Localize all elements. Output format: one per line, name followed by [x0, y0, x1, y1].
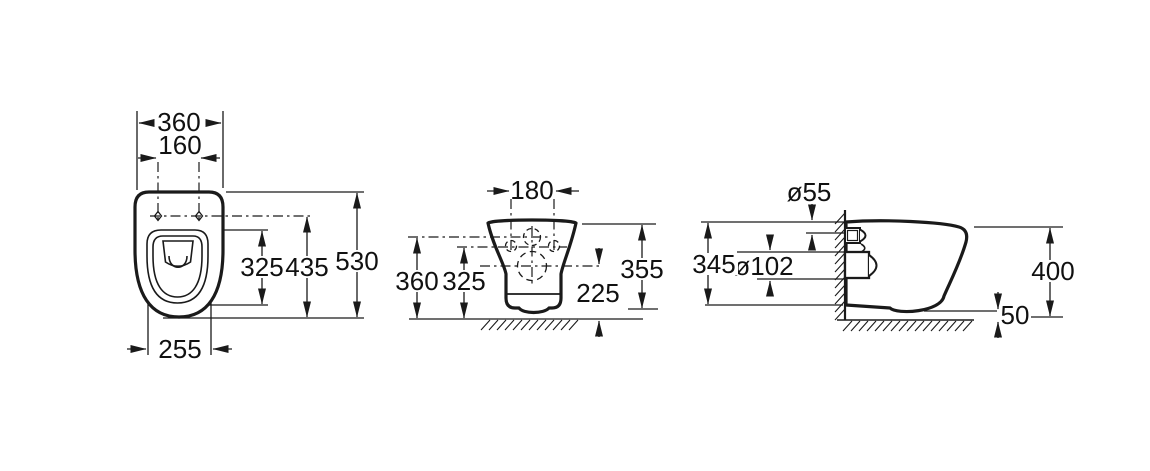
dim-rear-width: 255	[127, 334, 232, 364]
dim-label: 325	[240, 252, 283, 282]
dim-label: 530	[335, 246, 378, 276]
floor-hatch	[843, 321, 972, 331]
dim-label: ø102	[734, 251, 793, 281]
floor-hatch	[481, 320, 578, 330]
dim-fixing-centres-front: 180	[487, 175, 579, 205]
technical-drawing: 360 160 325 435 530 255	[0, 0, 1150, 471]
dim-label: 360	[395, 266, 438, 296]
outlet-stub	[845, 252, 869, 278]
dim-floor-clearance: 50	[998, 292, 1029, 338]
dim-label: 345	[692, 249, 735, 279]
dim-label: ø55	[787, 177, 832, 207]
dim-outlet-axis-height: 225	[576, 248, 619, 337]
dim-inlet-axis-height: 360	[394, 238, 440, 318]
dim-label: 50	[1001, 300, 1030, 330]
dim-fixing-axis-height: 325	[441, 248, 487, 318]
top-view: 360 160 325 435 530 255	[127, 107, 380, 364]
dim-axis-to-front: 435	[284, 217, 330, 317]
dim-label: 435	[285, 252, 328, 282]
dim-overall-height: 355	[619, 225, 665, 308]
front-view: 180 360 325 355 225	[394, 175, 665, 337]
dim-inlet-diameter: ø55	[787, 177, 832, 249]
dim-label: 225	[576, 278, 619, 308]
drawing-canvas: 360 160 325 435 530 255	[0, 0, 1150, 471]
dim-outlet-diameter: ø102	[734, 235, 793, 296]
side-view: ø55 ø102 345 400 50	[691, 177, 1076, 338]
dim-label: 400	[1031, 256, 1074, 286]
dim-label: 355	[620, 254, 663, 284]
dim-fixing-centres: 160	[138, 130, 220, 160]
dim-overall-depth: 530	[334, 193, 380, 317]
dim-bowl-length: 325	[239, 231, 285, 304]
dim-wall-height: 345	[691, 223, 738, 304]
wall-hatch	[835, 213, 845, 320]
dim-label: 160	[158, 130, 201, 160]
dim-label: 325	[442, 266, 485, 296]
dim-label: 255	[158, 334, 201, 364]
dim-label: 180	[510, 175, 553, 205]
flush-outlet-detail	[163, 241, 193, 266]
